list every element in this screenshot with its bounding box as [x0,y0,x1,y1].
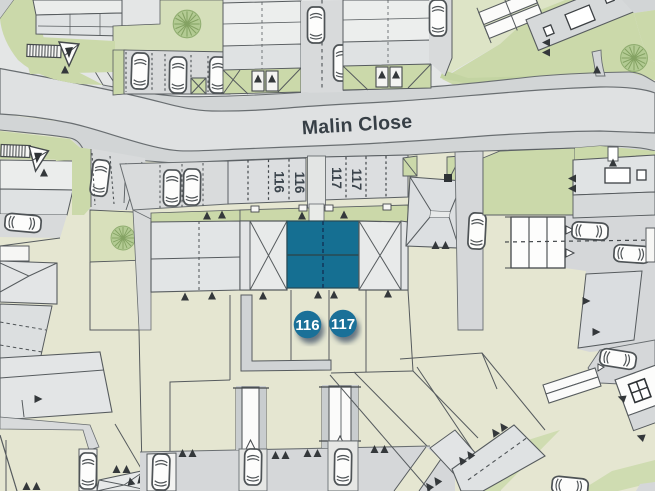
svg-text:116: 116 [295,317,319,334]
svg-text:116: 116 [272,171,287,193]
svg-text:117: 117 [329,167,344,189]
svg-text:117: 117 [331,316,355,333]
svg-text:117: 117 [349,169,364,191]
svg-text:116: 116 [292,172,307,194]
